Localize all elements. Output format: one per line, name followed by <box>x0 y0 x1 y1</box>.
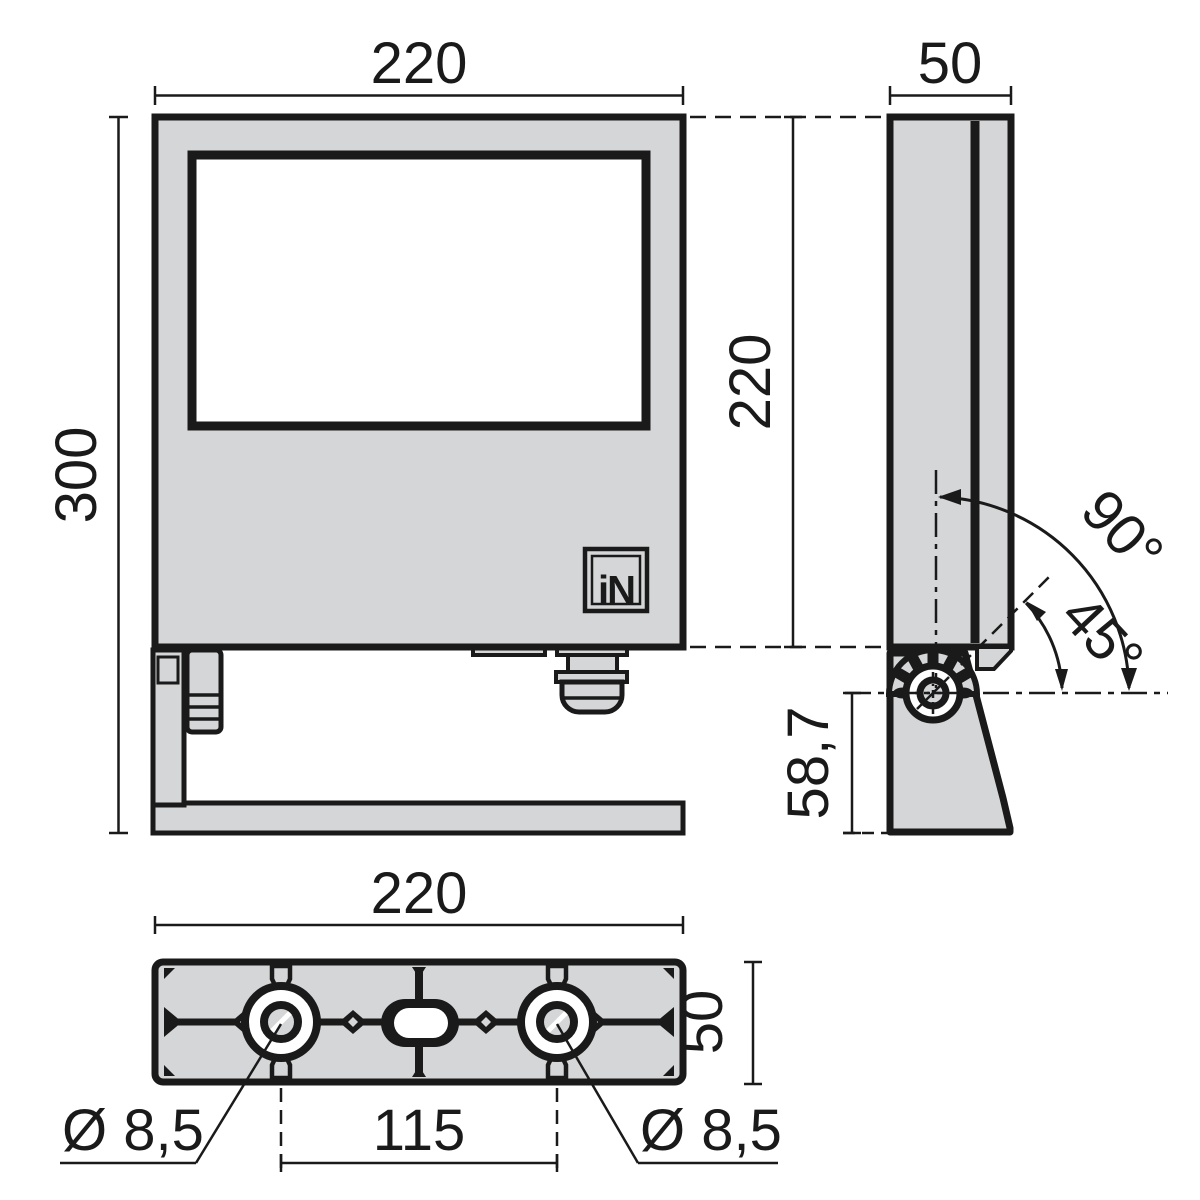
angle-45: 45° <box>1026 582 1156 691</box>
side-view: 220 <box>690 31 1176 833</box>
gland-neck <box>568 655 617 672</box>
logo-badge: iN <box>585 549 647 613</box>
bezel-foot <box>977 647 1011 669</box>
bottom-view: 220 50 115 Ø 8,5 Ø 8,5 <box>60 861 782 1172</box>
housing-side <box>890 117 1011 647</box>
mounting-hole-right <box>521 986 593 1058</box>
dim-hole-spacing: 115 <box>281 1088 557 1172</box>
dim-side-depth: 50 <box>890 31 1011 105</box>
dim-pivot-offset-label: 58,7 <box>776 707 841 820</box>
dim-bottom-depth-label: 50 <box>670 990 735 1055</box>
center-slot-hole <box>394 1008 448 1038</box>
dim-front-width-label: 220 <box>371 31 468 96</box>
lens <box>192 155 646 426</box>
dim-front-width: 220 <box>155 31 683 105</box>
dim-front-height: 300 <box>44 117 128 833</box>
logo-text: iN <box>598 569 634 613</box>
angle-45-arrow-end <box>1055 669 1068 691</box>
center-slot <box>381 999 459 1047</box>
hole-dia-left-label: Ø 8,5 <box>62 1098 204 1163</box>
dim-front-height-label: 300 <box>44 427 109 524</box>
cable-gland <box>556 646 627 712</box>
dim-bottom-width-label: 220 <box>371 861 468 926</box>
front-view: iN 220 300 <box>44 31 683 833</box>
dim-bottom-width: 220 <box>155 861 683 934</box>
dim-side-height-label: 220 <box>718 334 783 431</box>
mounting-hole-left <box>245 986 317 1058</box>
dim-pivot-offset: 58,7 <box>776 693 888 833</box>
bracket-base-plate-front <box>153 803 683 833</box>
dim-side-depth-label: 50 <box>918 31 983 96</box>
angle-45-arrow-start <box>1026 601 1046 621</box>
dimension-drawing: iN 220 300 220 <box>0 0 1200 1200</box>
hole-dia-right-label: Ø 8,5 <box>640 1098 782 1163</box>
dim-hole-spacing-label: 115 <box>373 1098 465 1163</box>
dim-side-height: 220 <box>718 117 802 647</box>
